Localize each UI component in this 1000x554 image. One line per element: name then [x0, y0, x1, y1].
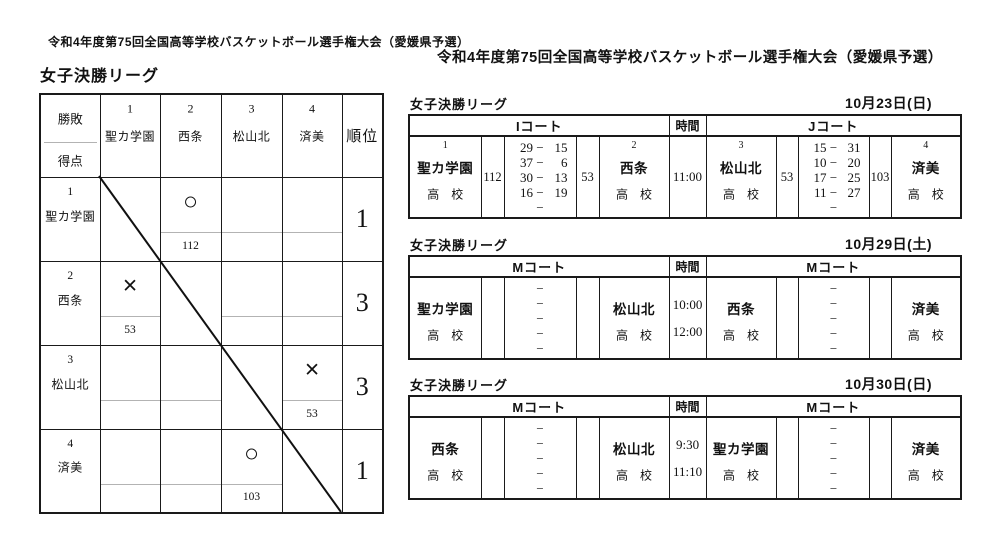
dash-separator: − — [827, 140, 841, 155]
quarter-home-score — [799, 326, 827, 341]
time-value: 11:10 — [670, 464, 706, 480]
dash-separator: − — [827, 311, 841, 326]
quarter-score-list: 29−15 37−6 30−13 16−19 − — [505, 140, 576, 215]
team-cell: 聖カ学園 高 校 — [409, 277, 481, 359]
court-header-right: Mコート — [706, 396, 961, 417]
dash-separator: − — [533, 481, 547, 496]
matrix-row-label: 1 聖カ学園 — [40, 177, 100, 261]
team-seed: 1 — [41, 186, 100, 198]
quarter-home-score — [505, 296, 534, 311]
quarter-away-score — [547, 341, 576, 356]
quarter-score-list: − − − − − — [505, 281, 576, 356]
quarter-away-score — [547, 200, 576, 215]
quarter-line: − — [799, 200, 869, 215]
rank-value: 3 — [342, 345, 383, 429]
team-cell: 西条 高 校 — [706, 277, 776, 359]
quarter-away-score — [841, 451, 869, 466]
quarter-score-list: 15−31 10−20 17−25 11−27 − — [799, 140, 869, 215]
quarter-score-list: − − − − − — [799, 421, 869, 496]
quarter-home-score — [505, 341, 534, 356]
schedule-league-title: 女子決勝リーグ — [410, 375, 508, 394]
quarter-scores-cell: 15−31 10−20 17−25 11−27 − — [798, 136, 869, 218]
quarter-line: − — [799, 296, 869, 311]
court-header-left: Mコート — [409, 396, 669, 417]
quarter-home-score: 29 — [505, 140, 534, 155]
time-header: 時間 — [669, 256, 706, 277]
rank-value: 1 — [342, 429, 383, 513]
score-value: 53 — [283, 408, 342, 420]
score-divider-line — [283, 400, 342, 401]
rank-value: 1 — [342, 177, 383, 261]
dash-separator: − — [827, 451, 841, 466]
total-score-cell — [481, 417, 504, 499]
score-divider-line — [101, 400, 160, 401]
schedule-table: Mコート 時間 Mコート 西条 高 校 − − − − − — [408, 395, 962, 500]
win-loss-label: 勝敗 — [41, 108, 100, 127]
dash-separator: − — [533, 466, 547, 481]
dash-separator: − — [827, 481, 841, 496]
tournament-sheet: 令和4年度第75回全国高等学校バスケットボール選手権大会（愛媛県予選） 女子決勝… — [0, 0, 1000, 554]
matrix-result-cell — [100, 429, 160, 513]
schedule-table: Iコート 時間 Jコート 1 聖カ学園 高 校 112 29−15 37−6 3… — [408, 114, 962, 219]
team-name: 西条 — [41, 291, 100, 308]
quarter-away-score — [841, 466, 869, 481]
team-suffix: 高 校 — [707, 466, 776, 483]
quarter-home-score — [505, 421, 534, 436]
schedule-titlebar: 女子決勝リーグ 10月23日(日) — [408, 92, 960, 114]
team-cell: 3 松山北 高 校 — [706, 136, 776, 218]
schedule-date: 10月23日(日) — [845, 93, 932, 113]
quarter-home-score — [799, 200, 827, 215]
quarter-home-score: 30 — [505, 170, 534, 185]
quarter-line: − — [799, 326, 869, 341]
quarter-away-score — [547, 296, 576, 311]
matrix-result-cell — [160, 345, 221, 429]
quarter-away-score — [841, 436, 869, 451]
rank-value: 3 — [342, 261, 383, 345]
matrix-col-header: 4 済美 — [282, 94, 342, 177]
dash-separator: − — [533, 326, 547, 341]
schedule-league-title: 女子決勝リーグ — [410, 94, 508, 113]
team-cell: 松山北 高 校 — [599, 277, 669, 359]
time-header: 時間 — [669, 115, 706, 136]
team-seed: 1 — [410, 141, 481, 151]
team-suffix: 高 校 — [707, 185, 776, 202]
schedule-titlebar: 女子決勝リーグ 10月30日(日) — [408, 373, 960, 395]
quarter-away-score: 25 — [841, 170, 869, 185]
score-divider-line — [101, 484, 160, 485]
matrix-result-cell — [221, 261, 282, 345]
quarter-home-score: 37 — [505, 155, 534, 170]
quarter-away-score: 31 — [841, 140, 869, 155]
team-cell: 1 聖カ学園 高 校 — [409, 136, 481, 218]
team-seed: 4 — [41, 438, 100, 450]
total-score-cell — [776, 417, 798, 499]
team-cell: 西条 高 校 — [409, 417, 481, 499]
team-cell: 聖カ学園 高 校 — [706, 417, 776, 499]
score-value: 103 — [222, 491, 282, 503]
schedule-date: 10月30日(日) — [845, 374, 932, 394]
court-header-right: Mコート — [706, 256, 961, 277]
matrix-result-cell: × 53 — [282, 345, 342, 429]
time-value: 10:00 — [670, 297, 706, 313]
score-divider-line — [222, 232, 282, 233]
quarter-line: − — [505, 341, 576, 356]
rank-header: 順位 — [342, 94, 383, 177]
quarter-line: 10−20 — [799, 155, 869, 170]
team-suffix: 高 校 — [410, 185, 481, 202]
league-title-left: 女子決勝リーグ — [40, 62, 159, 86]
team-suffix: 高 校 — [410, 466, 481, 483]
team-name: 西条 — [161, 127, 221, 144]
dash-separator: − — [827, 466, 841, 481]
team-name: 西条 — [410, 438, 481, 458]
quarter-home-score — [799, 421, 827, 436]
dash-separator: − — [533, 200, 547, 215]
quarter-score-list: − − − − − — [505, 421, 576, 496]
quarter-line: 17−25 — [799, 170, 869, 185]
score-divider-line — [161, 484, 221, 485]
total-score-cell — [576, 417, 599, 499]
quarter-line: 37−6 — [505, 155, 576, 170]
quarter-away-score — [841, 481, 869, 496]
dash-separator: − — [533, 296, 547, 311]
quarter-away-score — [547, 281, 576, 296]
team-cell: 済美 高 校 — [891, 417, 961, 499]
dash-separator: − — [533, 421, 547, 436]
quarter-line: − — [799, 466, 869, 481]
matrix-result-cell — [221, 177, 282, 261]
quarter-line: − — [505, 296, 576, 311]
dash-separator: − — [533, 281, 547, 296]
quarter-scores-cell: − − − − − — [504, 277, 576, 359]
team-suffix: 高 校 — [892, 185, 961, 202]
matrix-result-cell — [100, 345, 160, 429]
quarter-away-score — [547, 451, 576, 466]
team-suffix: 高 校 — [892, 466, 961, 483]
team-name: 聖カ学園 — [707, 438, 776, 458]
quarter-away-score — [547, 326, 576, 341]
time-header: 時間 — [669, 396, 706, 417]
team-name: 松山北 — [600, 438, 669, 458]
quarter-away-score — [547, 481, 576, 496]
schedule-table: Mコート 時間 Mコート 聖カ学園 高 校 − − − − − — [408, 255, 962, 360]
team-name: 済美 — [892, 157, 961, 177]
quarter-line: − — [799, 281, 869, 296]
team-name: 松山北 — [600, 298, 669, 318]
schedule-block-oct30: 女子決勝リーグ 10月30日(日) Mコート 時間 Mコート 西条 高 校 − — [408, 373, 960, 500]
quarter-line: − — [505, 200, 576, 215]
schedule-league-title: 女子決勝リーグ — [410, 235, 508, 254]
dash-separator: − — [533, 155, 547, 170]
team-name: 聖カ学園 — [410, 157, 481, 177]
total-score-cell: 53 — [776, 136, 798, 218]
court-header-left: Iコート — [409, 115, 669, 136]
quarter-line: − — [799, 436, 869, 451]
quarter-scores-cell: − − − − − — [798, 417, 869, 499]
quarter-line: − — [505, 436, 576, 451]
matrix-row-label: 2 西条 — [40, 261, 100, 345]
team-seed: 3 — [707, 141, 776, 151]
score-divider-line — [161, 232, 221, 233]
quarter-away-score — [841, 421, 869, 436]
team-name: 松山北 — [41, 375, 100, 392]
total-score-cell — [481, 277, 504, 359]
quarter-home-score — [505, 200, 534, 215]
tournament-title-right: 令和4年度第75回全国高等学校バスケットボール選手権大会（愛媛県予選） — [437, 46, 943, 67]
team-suffix: 高 校 — [410, 326, 481, 343]
win-loss-symbol: ○ — [222, 442, 282, 467]
score-divider-line — [222, 484, 282, 485]
time-cell: 10:00 12:00 — [669, 277, 706, 359]
quarter-home-score — [505, 466, 534, 481]
quarter-line: − — [799, 311, 869, 326]
dash-separator: − — [827, 296, 841, 311]
quarter-home-score: 11 — [799, 185, 827, 200]
dash-separator: − — [533, 185, 547, 200]
quarter-line: − — [799, 481, 869, 496]
quarter-line: − — [505, 481, 576, 496]
matrix-result-cell — [160, 429, 221, 513]
quarter-home-score: 17 — [799, 170, 827, 185]
total-score-cell — [869, 277, 891, 359]
time-cell: 11:00 — [669, 136, 706, 218]
quarter-home-score — [799, 436, 827, 451]
quarter-line: 30−13 — [505, 170, 576, 185]
total-score-cell: 103 — [869, 136, 891, 218]
team-suffix: 高 校 — [892, 326, 961, 343]
team-name: 済美 — [283, 127, 342, 144]
matrix-table: 勝敗 得点 1 聖カ学園 2 西条 3 松山北 4 済 — [39, 93, 384, 514]
quarter-away-score: 6 — [547, 155, 576, 170]
team-seed: 4 — [283, 101, 342, 116]
matrix-row-label: 4 済美 — [40, 429, 100, 513]
quarter-away-score: 13 — [547, 170, 576, 185]
matrix-col-header: 3 松山北 — [221, 94, 282, 177]
dash-separator: − — [827, 170, 841, 185]
quarter-home-score — [799, 311, 827, 326]
team-name: 聖カ学園 — [410, 298, 481, 318]
matrix-result-cell — [282, 177, 342, 261]
time-cell: 9:30 11:10 — [669, 417, 706, 499]
team-seed: 1 — [101, 101, 160, 116]
quarter-away-score — [841, 326, 869, 341]
score-value: 112 — [161, 240, 221, 252]
quarter-home-score — [505, 311, 534, 326]
quarter-home-score — [799, 481, 827, 496]
corner-divider-line — [44, 142, 97, 143]
dash-separator: − — [827, 281, 841, 296]
dash-separator: − — [533, 436, 547, 451]
team-name: 松山北 — [707, 157, 776, 177]
quarter-line: − — [505, 451, 576, 466]
quarter-line: 11−27 — [799, 185, 869, 200]
schedule-block-oct23: 女子決勝リーグ 10月23日(日) Iコート 時間 Jコート 1 聖カ学園 高 … — [408, 92, 960, 219]
quarter-home-score — [505, 436, 534, 451]
matrix-row-label: 3 松山北 — [40, 345, 100, 429]
team-suffix: 高 校 — [600, 185, 669, 202]
matrix-col-header: 2 西条 — [160, 94, 221, 177]
court-header-right: Jコート — [706, 115, 961, 136]
dash-separator: − — [533, 451, 547, 466]
quarter-away-score — [841, 296, 869, 311]
total-score-cell — [576, 277, 599, 359]
quarter-away-score — [841, 311, 869, 326]
time-value: 9:30 — [670, 437, 706, 453]
team-seed: 3 — [41, 354, 100, 366]
score-divider-line — [161, 400, 221, 401]
team-cell: 2 西条 高 校 — [599, 136, 669, 218]
team-suffix: 高 校 — [707, 326, 776, 343]
quarter-line: 29−15 — [505, 140, 576, 155]
matrix-diagonal-cell — [282, 429, 342, 513]
team-seed: 2 — [600, 141, 669, 151]
quarter-away-score — [841, 341, 869, 356]
dash-separator: − — [827, 185, 841, 200]
tournament-title-left: 令和4年度第75回全国高等学校バスケットボール選手権大会（愛媛県予選） — [48, 33, 470, 50]
quarter-score-list: − − − − − — [799, 281, 869, 356]
quarter-home-score — [799, 281, 827, 296]
team-name: 済美 — [41, 459, 100, 476]
matrix-corner-cell: 勝敗 得点 — [40, 94, 100, 177]
quarter-home-score — [505, 281, 534, 296]
quarter-home-score — [799, 296, 827, 311]
team-seed: 3 — [222, 101, 282, 116]
score-divider-line — [283, 232, 342, 233]
total-score-cell — [776, 277, 798, 359]
quarter-line: − — [505, 326, 576, 341]
team-seed: 4 — [892, 141, 961, 151]
win-loss-symbol: ○ — [161, 190, 221, 215]
quarter-scores-cell: − − − − − — [504, 417, 576, 499]
quarter-away-score — [547, 466, 576, 481]
dash-separator: − — [533, 341, 547, 356]
quarter-line: − — [799, 341, 869, 356]
quarter-scores-cell: 29−15 37−6 30−13 16−19 − — [504, 136, 576, 218]
quarter-away-score: 19 — [547, 185, 576, 200]
quarter-line: − — [505, 466, 576, 481]
matrix-result-cell — [282, 261, 342, 345]
quarter-line: − — [799, 421, 869, 436]
quarter-away-score: 27 — [841, 185, 869, 200]
quarter-home-score — [505, 326, 534, 341]
quarter-home-score: 10 — [799, 155, 827, 170]
team-name: 聖カ学園 — [101, 127, 160, 144]
score-value: 53 — [101, 324, 160, 336]
quarter-line: − — [505, 421, 576, 436]
team-name: 済美 — [892, 438, 961, 458]
league-matrix: 勝敗 得点 1 聖カ学園 2 西条 3 松山北 4 済 — [39, 93, 382, 512]
quarter-home-score: 15 — [799, 140, 827, 155]
team-name: 西条 — [600, 157, 669, 177]
quarter-line: − — [799, 451, 869, 466]
quarter-line: 15−31 — [799, 140, 869, 155]
quarter-away-score: 15 — [547, 140, 576, 155]
dash-separator: − — [827, 341, 841, 356]
matrix-result-cell: ○ 103 — [221, 429, 282, 513]
quarter-home-score — [799, 451, 827, 466]
team-seed: 2 — [161, 101, 221, 116]
matrix-result-cell: ○ 112 — [160, 177, 221, 261]
quarter-line: − — [505, 311, 576, 326]
total-score-cell: 112 — [481, 136, 504, 218]
quarter-away-score — [547, 311, 576, 326]
dash-separator: − — [827, 200, 841, 215]
quarter-away-score — [547, 421, 576, 436]
quarter-line: 16−19 — [505, 185, 576, 200]
dash-separator: − — [533, 170, 547, 185]
dash-separator: − — [827, 436, 841, 451]
team-name: 聖カ学園 — [41, 207, 100, 224]
team-suffix: 高 校 — [600, 326, 669, 343]
team-name: 松山北 — [222, 127, 282, 144]
matrix-diagonal-cell — [100, 177, 160, 261]
win-loss-symbol: × — [283, 358, 342, 383]
team-name: 西条 — [707, 298, 776, 318]
dash-separator: − — [827, 421, 841, 436]
matrix-result-cell: × 53 — [100, 261, 160, 345]
team-cell: 4 済美 高 校 — [891, 136, 961, 218]
quarter-scores-cell: − − − − − — [798, 277, 869, 359]
quarter-home-score — [505, 481, 534, 496]
court-header-left: Mコート — [409, 256, 669, 277]
team-cell: 松山北 高 校 — [599, 417, 669, 499]
quarter-home-score — [799, 341, 827, 356]
quarter-home-score — [505, 451, 534, 466]
quarter-line: − — [505, 281, 576, 296]
points-label: 得点 — [41, 151, 100, 170]
score-divider-line — [101, 316, 160, 317]
time-value: 12:00 — [670, 324, 706, 340]
schedule-titlebar: 女子決勝リーグ 10月29日(土) — [408, 233, 960, 255]
schedule-date: 10月29日(土) — [845, 234, 932, 254]
dash-separator: − — [533, 140, 547, 155]
team-suffix: 高 校 — [600, 466, 669, 483]
time-value: 11:00 — [670, 169, 706, 185]
quarter-away-score — [547, 436, 576, 451]
quarter-away-score — [841, 200, 869, 215]
dash-separator: − — [533, 311, 547, 326]
team-name: 済美 — [892, 298, 961, 318]
dash-separator: − — [827, 326, 841, 341]
quarter-home-score — [799, 466, 827, 481]
total-score-cell — [869, 417, 891, 499]
score-divider-line — [283, 316, 342, 317]
quarter-away-score — [841, 281, 869, 296]
team-seed: 2 — [41, 270, 100, 282]
schedule-block-oct29: 女子決勝リーグ 10月29日(土) Mコート 時間 Mコート 聖カ学園 高 校 … — [408, 233, 960, 360]
matrix-diagonal-cell — [221, 345, 282, 429]
team-cell: 済美 高 校 — [891, 277, 961, 359]
dash-separator: − — [827, 155, 841, 170]
win-loss-symbol: × — [101, 274, 160, 299]
quarter-home-score: 16 — [505, 185, 534, 200]
matrix-diagonal-cell — [160, 261, 221, 345]
total-score-cell: 53 — [576, 136, 599, 218]
quarter-away-score: 20 — [841, 155, 869, 170]
score-divider-line — [222, 316, 282, 317]
matrix-col-header: 1 聖カ学園 — [100, 94, 160, 177]
